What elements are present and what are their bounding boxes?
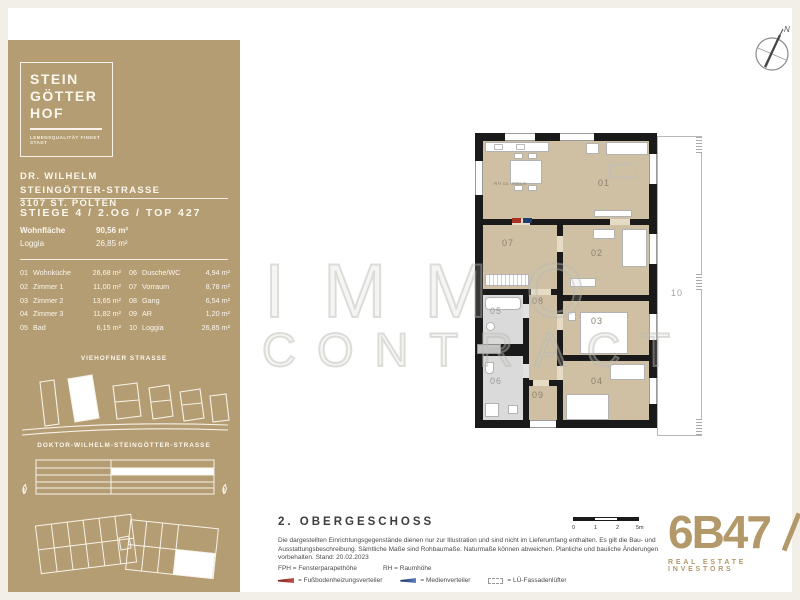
summary-value: 26,85 m² [96, 239, 128, 252]
furniture-wc [485, 362, 494, 374]
page-background: STEIN GÖTTER HOF LEBENSQUALITÄT FINDET S… [8, 8, 792, 592]
legend-item-heating: = Fußbodenheizungsverteiler [278, 577, 382, 584]
room-area: 8,78 m² [206, 282, 230, 291]
railing-ticks [696, 274, 702, 290]
room-name: Wohnküche [33, 268, 93, 277]
scale-0: 0 [572, 525, 575, 531]
scale-5m: 5m [636, 525, 644, 531]
room-area: 26,85 m² [202, 323, 230, 332]
plan-label-02: 02 [591, 248, 603, 258]
sidebar: STEIN GÖTTER HOF LEBENSQUALITÄT FINDET S… [8, 40, 240, 592]
logo-line-1: STEIN [30, 71, 112, 88]
furniture-washbasin [486, 322, 495, 331]
room-name: Bad [33, 323, 97, 332]
address-line-1: DR. WILHELM [20, 170, 160, 184]
street-label-bottom: DOKTOR-WILHELM-STEINGÖTTER-STRASSE [8, 442, 240, 449]
furniture-shower [485, 403, 499, 417]
summary-row: Wohnfläche 90,56 m² [20, 226, 228, 239]
furniture-washbasin [508, 405, 518, 414]
room-no: 07 [129, 282, 142, 291]
plan-label-05: 05 [490, 306, 502, 316]
furniture-closet [485, 274, 529, 286]
logo-divider [30, 128, 102, 130]
room-row: 09AR1,20 m² [129, 309, 230, 323]
room-no: 06 [129, 268, 142, 277]
furniture-side-table [586, 143, 599, 154]
room-area: 4,94 m² [206, 268, 230, 277]
scale-2: 2 [616, 525, 619, 531]
room-no: 09 [129, 309, 142, 318]
room-name: Zimmer 1 [33, 282, 93, 291]
furniture-chair [514, 153, 523, 159]
area-summary: Wohnfläche 90,56 m² Loggia 26,85 m² [20, 226, 228, 252]
furniture-sideboard [594, 210, 632, 217]
plan-label-01: 01 [598, 178, 610, 188]
summary-label: Wohnfläche [20, 226, 96, 239]
plan-label-07: 07 [502, 238, 514, 248]
furniture-hob [516, 144, 525, 150]
loggia-window [649, 314, 657, 340]
room-name: Dusche/WC [142, 268, 206, 277]
floor-title: 2. OBERGESCHOSS [278, 516, 434, 528]
scale-segment [574, 518, 595, 520]
room-area: 11,82 m² [93, 309, 121, 318]
legend-item-label: = Medienverteiler [420, 577, 470, 584]
legend-rh: RH = Raumhöhe [383, 565, 432, 572]
entrance-door [530, 420, 556, 428]
door-gap [557, 314, 563, 330]
room-area: 13,65 m² [93, 296, 121, 305]
room-no: 08 [129, 296, 142, 305]
disclaimer-text: Die dargestellten Einrichtungsgegenständ… [278, 537, 672, 563]
compass-north-label: N [784, 25, 790, 34]
room-no: 04 [20, 309, 33, 318]
furniture-nightstand [568, 312, 576, 321]
plan-label-06: 06 [490, 376, 502, 386]
company-logo: 6B47 REAL ESTATE INVESTORS [668, 508, 798, 573]
railing-ticks [696, 419, 702, 435]
room-name: Gang [142, 296, 206, 305]
furniture-bed [566, 394, 609, 420]
room-area: 26,68 m² [93, 268, 121, 277]
scale-1: 1 [594, 525, 597, 531]
floor-heating-distributor-mark [512, 218, 521, 223]
room-row: 01Wohnküche26,68 m² [20, 268, 121, 282]
legend-symbols: = Fußbodenheizungsverteiler = Medienvert… [278, 577, 567, 584]
room-row: 04Zimmer 311,82 m² [20, 309, 121, 323]
furniture-sofa [606, 142, 648, 155]
room-area: 6,15 m² [97, 323, 121, 332]
railing-ticks [696, 137, 702, 153]
door-gap [523, 304, 529, 318]
room-no: 01 [20, 268, 33, 277]
room-name: AR [142, 309, 206, 318]
site-map [16, 364, 232, 445]
legend-fph: FPH = Fensterparapethöhe [278, 565, 357, 572]
scale-bar [573, 517, 639, 521]
door-gap [523, 364, 529, 378]
loggia-window [649, 378, 657, 404]
media-distributor-mark [523, 218, 532, 223]
room-name: Zimmer 2 [33, 296, 93, 305]
room-row: 10Loggia26,85 m² [129, 323, 230, 337]
room-no: 10 [129, 323, 142, 332]
key-plan [16, 504, 232, 595]
room-row: 03Zimmer 213,65 m² [20, 296, 121, 310]
plan-label-04: 04 [591, 376, 603, 386]
media-distributor-icon [400, 578, 416, 583]
site-map-drawing [16, 364, 232, 440]
project-logo: STEIN GÖTTER HOF LEBENSQUALITÄT FINDET S… [20, 62, 113, 157]
door-gap [531, 289, 551, 295]
summary-value: 90,56 m² [96, 226, 128, 239]
room-loggia [657, 136, 702, 436]
furniture-chair [528, 153, 537, 159]
logo-tagline: LEBENSQUALITÄT FINDET STADT [30, 135, 112, 145]
elevation-drawing [16, 454, 232, 502]
room-table-col-1: 01Wohnküche26,68 m² 02Zimmer 111,00 m² 0… [20, 268, 121, 337]
scale-segment [617, 518, 638, 520]
divider [20, 198, 228, 199]
room-area: 11,00 m² [93, 282, 121, 291]
window [505, 133, 535, 141]
summary-row: Loggia 26,85 m² [20, 239, 228, 252]
street-label-top: VIEHOFNER STRASSE [8, 355, 240, 362]
room-gang [529, 295, 557, 380]
furniture-chair [528, 185, 537, 191]
room-row: 07Vorraum8,78 m² [129, 282, 230, 296]
compass-icon: N [741, 20, 800, 84]
company-subtitle: REAL ESTATE INVESTORS [668, 559, 798, 573]
door-gap [610, 219, 630, 225]
room-no: 05 [20, 323, 33, 332]
loggia-door [649, 154, 657, 184]
legend-item-label: = Fußbodenheizungsverteiler [298, 577, 382, 584]
room-no: 03 [20, 296, 33, 305]
legend-abbreviations: FPH = Fensterparapethöhe RH = Raumhöhe [278, 565, 432, 572]
plan-label-03: 03 [591, 316, 603, 326]
loggia-window [649, 234, 657, 264]
window [475, 161, 483, 195]
summary-label: Loggia [20, 239, 96, 252]
plan-label-09: 09 [532, 390, 544, 400]
door-gap [557, 236, 563, 252]
unit-title: STIEGE 4 / 2.OG / TOP 427 [20, 207, 202, 219]
brochure-page: STEIN GÖTTER HOF LEBENSQUALITÄT FINDET S… [0, 0, 800, 600]
divider [20, 259, 228, 260]
room-name: Zimmer 3 [33, 309, 93, 318]
project-address: DR. WILHELM STEINGÖTTER-STRASSE 3107 ST.… [20, 170, 160, 211]
room-area: 6,54 m² [206, 296, 230, 305]
room-name: Loggia [142, 323, 202, 332]
shaft [477, 344, 501, 354]
plan-label-10: 10 [671, 288, 683, 298]
room-name: Vorraum [142, 282, 206, 291]
legend-item-vent: = LÜ-Fassadenlüfter [488, 577, 566, 584]
furniture-wardrobe [610, 364, 645, 380]
legend-item-label: = LÜ-Fassadenlüfter [507, 577, 566, 584]
logo-line-2: GÖTTER [30, 88, 112, 105]
window [560, 133, 594, 141]
legend-item-media: = Medienverteiler [400, 577, 470, 584]
room-row: 06Dusche/WC4,94 m² [129, 268, 230, 282]
facade-vent-icon [488, 578, 503, 584]
logo-line-3: HOF [30, 105, 112, 122]
room-table-col-2: 06Dusche/WC4,94 m² 07Vorraum8,78 m² 08Ga… [129, 268, 230, 337]
furniture-wardrobe [593, 229, 615, 239]
key-plan-drawing [16, 504, 232, 590]
room-no: 02 [20, 282, 33, 291]
address-line-2: STEINGÖTTER-STRASSE [20, 184, 160, 198]
floor-plan: 01 02 03 04 05 06 07 08 09 10 RH ca. 265… [460, 126, 710, 471]
scale-segment [595, 518, 616, 520]
furniture-coffee-table [610, 164, 636, 178]
room-table: 01Wohnküche26,68 m² 02Zimmer 111,00 m² 0… [20, 268, 230, 337]
plan-label-08: 08 [532, 296, 544, 306]
furniture-bed-double [580, 312, 628, 354]
door-gap [557, 366, 563, 380]
furniture-sink [494, 144, 503, 150]
room-row: 05Bad6,15 m² [20, 323, 121, 337]
room-row: 08Gang6,54 m² [129, 296, 230, 310]
company-logo-text: 6B47 [668, 508, 798, 556]
room-area: 1,20 m² [206, 309, 230, 318]
compass-rose: N [741, 20, 800, 89]
room-height-note: RH ca. 265cm [494, 181, 527, 186]
building-elevation [16, 454, 232, 507]
room-row: 02Zimmer 111,00 m² [20, 282, 121, 296]
door-gap [533, 380, 549, 386]
floor-heating-icon [278, 578, 294, 583]
furniture-bed-single [622, 229, 647, 267]
furniture-desk [570, 278, 596, 287]
